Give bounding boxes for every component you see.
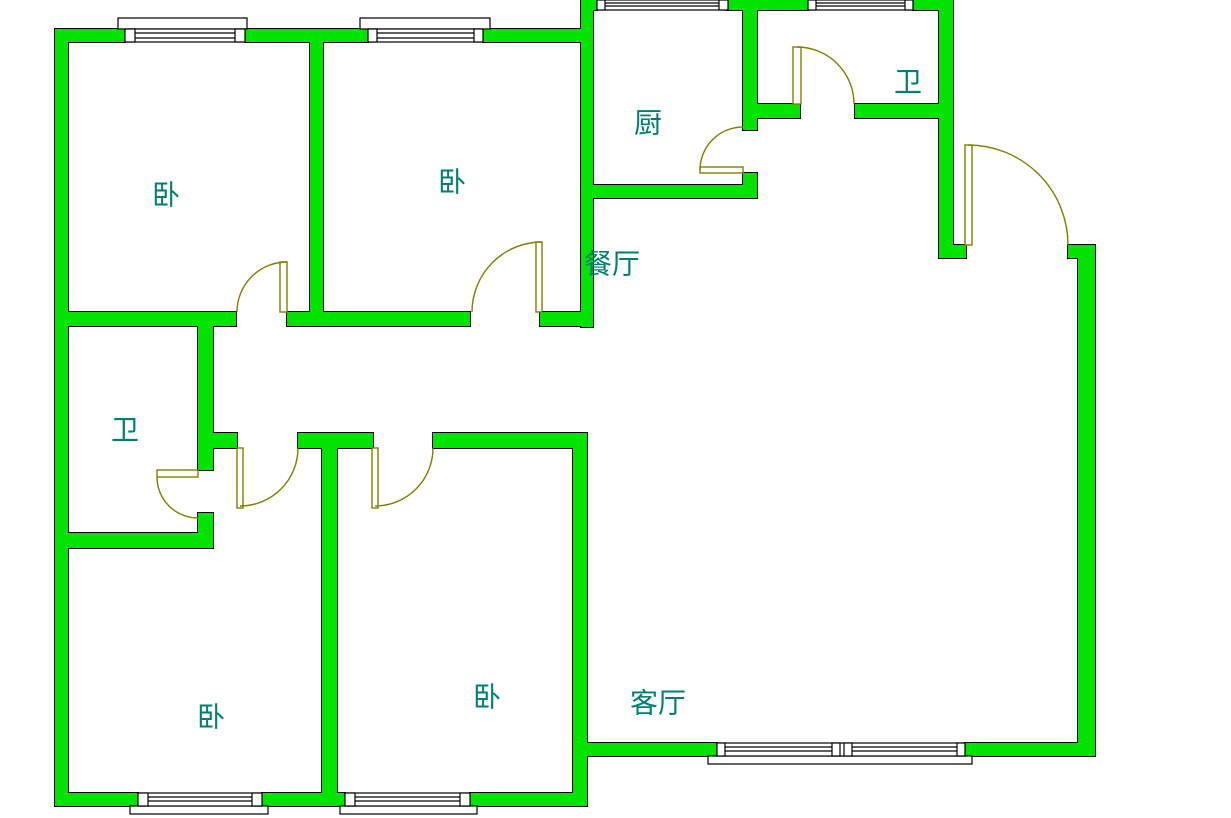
bathroom-top-right-door-panel — [793, 47, 801, 104]
wall-fill — [322, 448, 337, 793]
bedroom-bottom-mid-window-sill — [340, 806, 477, 814]
bedroom-bottom-left-window — [138, 793, 262, 806]
wall-fill — [213, 433, 237, 448]
bedroom-bottom-mid-window-post — [345, 793, 355, 806]
room-label-bathroom-top-right: 卫 — [894, 66, 922, 99]
bathroom-top-right-window-post — [905, 0, 913, 10]
wall-fill — [470, 793, 587, 806]
living-room-window — [717, 743, 965, 756]
room-label-living-room: 客厅 — [630, 687, 686, 720]
room-label-kitchen: 厨 — [634, 107, 662, 140]
bedroom-bottom-left-door-panel — [237, 448, 243, 508]
wall-fill — [55, 29, 68, 806]
wall-fill — [55, 533, 213, 548]
wall-fill — [939, 0, 953, 258]
bedroom-top-left-door-panel — [280, 262, 287, 312]
bathroom-top-right-window-post — [808, 0, 816, 10]
bedroom-top-mid-door-panel — [536, 242, 542, 312]
room-label-dining-room: 餐厅 — [584, 248, 640, 281]
wall-fill — [1078, 245, 1095, 756]
wall-fill — [1068, 245, 1095, 258]
wall-fill — [262, 793, 345, 806]
wall-fill — [483, 29, 593, 42]
room-label-bedroom-bottom-left: 卧 — [197, 701, 225, 734]
room-label-bedroom-top-middle: 卧 — [438, 166, 466, 199]
plan-background — [0, 0, 1231, 818]
kitchen-window-post — [719, 0, 728, 10]
floor-plan-page: 卧卧厨卫餐厅卫卧卧客厅 — [0, 0, 1231, 818]
bedroom-top-mid-window-sill — [360, 18, 490, 29]
bedroom-bottom-mid-window-post — [460, 793, 470, 806]
bedroom-top-mid-window — [368, 29, 483, 42]
room-label-bedroom-bottom-mid: 卧 — [473, 681, 501, 714]
wall-fill — [55, 793, 138, 806]
bedroom-bottom-mid-window — [345, 793, 470, 806]
wall-fill — [245, 29, 368, 42]
kitchen-window-post — [597, 0, 605, 10]
living-room-window-post — [832, 743, 840, 756]
living-room-window-post — [957, 743, 965, 756]
living-room-window-post — [844, 743, 852, 756]
bedroom-top-left-window — [125, 29, 245, 42]
wall-fill — [433, 433, 585, 448]
bedroom-top-mid-window-post — [474, 29, 483, 42]
bedroom-bottom-left-window-post — [138, 793, 148, 806]
room-label-bedroom-top-left: 卧 — [152, 179, 180, 212]
bedroom-top-mid-window-post — [368, 29, 377, 42]
bathroom-top-right-window — [808, 0, 913, 10]
entrance-door-panel — [965, 145, 972, 245]
bedroom-top-left-window-post — [235, 29, 245, 42]
wall-fill — [593, 185, 757, 198]
floor-plan-svg: 卧卧厨卫餐厅卫卧卧客厅 — [0, 0, 1231, 818]
bedroom-bottom-mid-door-panel — [372, 448, 378, 508]
wall-fill — [727, 0, 808, 10]
living-room-window-post — [717, 743, 725, 756]
wall-fill — [198, 326, 213, 470]
wall-fill — [587, 743, 717, 756]
bathroom-left-door-panel — [157, 470, 198, 477]
wall-fill — [55, 312, 236, 326]
wall-fill — [287, 312, 470, 326]
bedroom-top-left-window-post — [125, 29, 135, 42]
wall-fill — [939, 245, 966, 258]
room-label-bathroom-left: 卫 — [111, 414, 139, 447]
wall-fill — [757, 104, 800, 118]
wall-fill — [965, 743, 1095, 756]
wall-fill — [743, 0, 757, 130]
wall-fill — [298, 433, 373, 448]
kitchen-door-panel — [700, 167, 743, 173]
bedroom-bottom-left-window-sill — [130, 806, 268, 814]
kitchen-window — [597, 0, 728, 10]
bedroom-top-left-window-sill — [118, 18, 247, 29]
wall-fill — [55, 29, 125, 42]
wall-fill — [540, 312, 593, 326]
bedroom-bottom-left-window-post — [252, 793, 262, 806]
wall-fill — [573, 433, 587, 793]
living-room-window-sill — [708, 756, 972, 764]
wall-fill — [855, 104, 953, 118]
wall-fill — [310, 42, 323, 312]
